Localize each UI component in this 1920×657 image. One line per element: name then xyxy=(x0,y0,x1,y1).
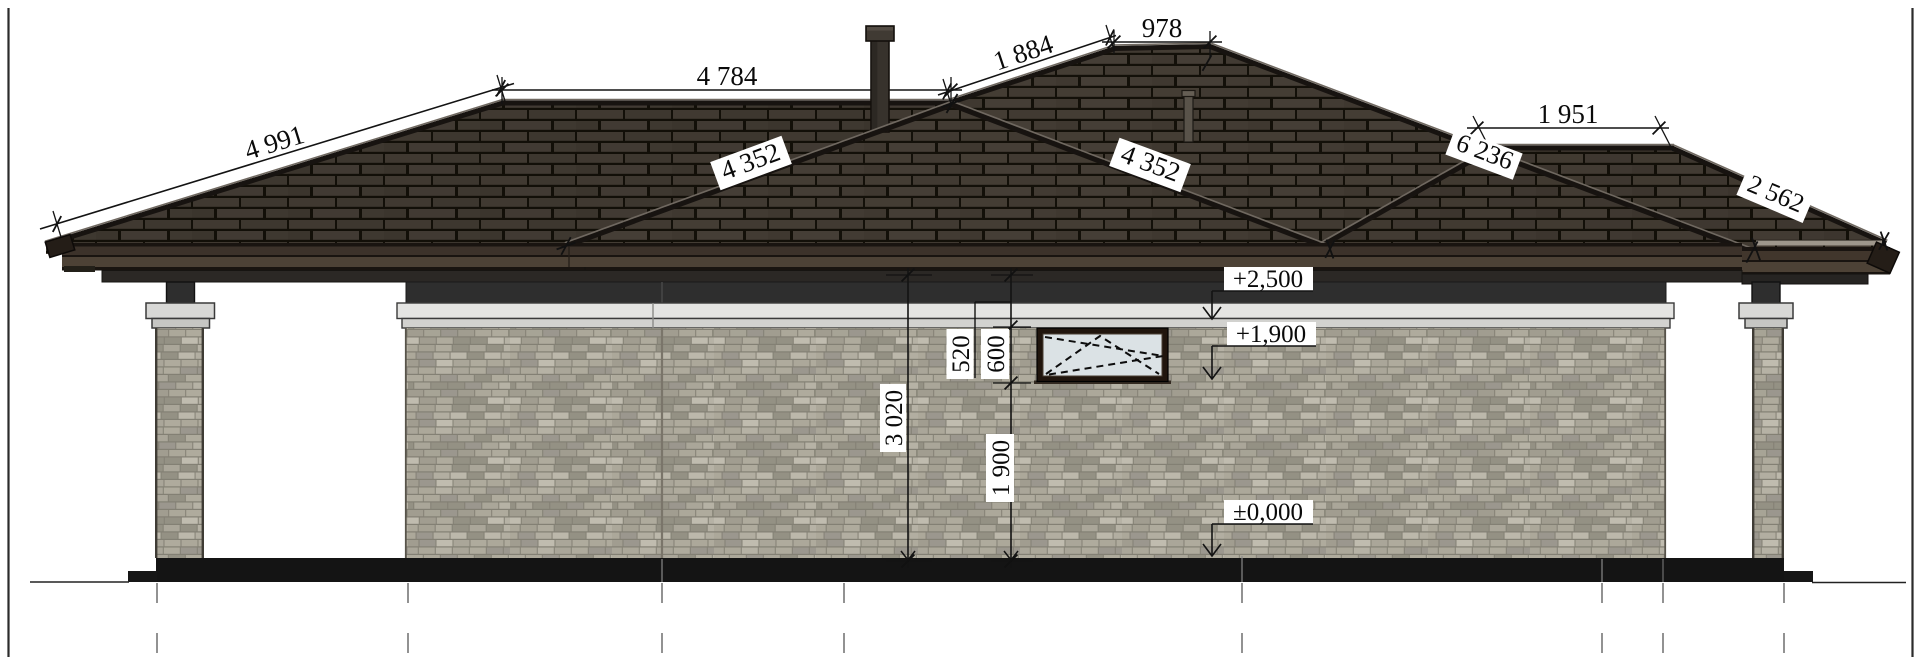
svg-text:+1,900: +1,900 xyxy=(1236,321,1306,348)
svg-text:520: 520 xyxy=(948,335,975,373)
svg-text:+2,500: +2,500 xyxy=(1233,266,1303,293)
svg-text:978: 978 xyxy=(1142,13,1183,43)
svg-text:1 951: 1 951 xyxy=(1538,99,1599,129)
svg-text:1 900: 1 900 xyxy=(988,440,1015,496)
svg-text:600: 600 xyxy=(983,335,1010,373)
svg-text:4 784: 4 784 xyxy=(697,61,758,91)
svg-text:3 020: 3 020 xyxy=(881,390,908,446)
svg-text:±0,000: ±0,000 xyxy=(1233,499,1303,526)
